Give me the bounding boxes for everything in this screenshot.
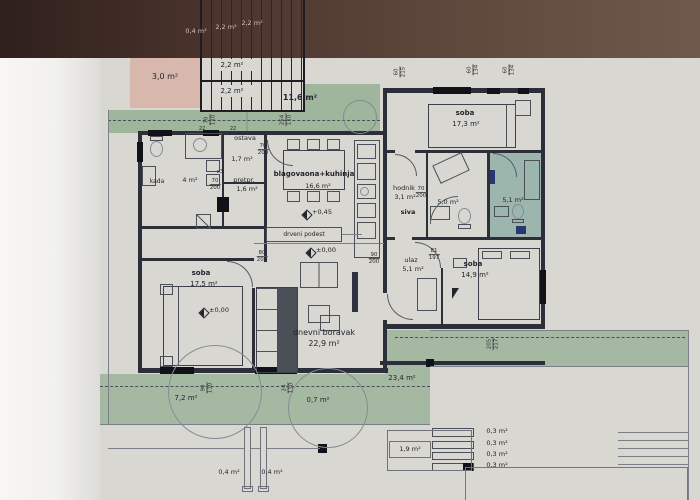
elev-soba: ±0,00 xyxy=(209,306,229,315)
sofa xyxy=(256,287,298,373)
chair xyxy=(307,139,320,150)
post xyxy=(260,427,267,489)
toilet-tank xyxy=(458,224,471,229)
dim-wall-a: 22 xyxy=(199,125,205,134)
stair-upper-area: 2,2 m² xyxy=(221,61,244,70)
kupaonica-right-area: 5,0 m² xyxy=(437,198,458,207)
dim-window-1: 60215 xyxy=(394,67,407,78)
far-stair-line xyxy=(618,432,688,433)
nightstand xyxy=(160,284,173,295)
blagovaona-name: blagovaona+kuhinja xyxy=(274,170,355,179)
chair xyxy=(287,191,300,202)
floor-plan: 3,0 m² 2,2 m² 2,2 m² 11,6 m² soba 17,3 m… xyxy=(0,0,700,500)
wall-hodnik-top-b xyxy=(415,150,543,153)
window-mark xyxy=(518,88,529,94)
dnevni-name: dnevni boravak xyxy=(293,328,355,337)
hodnik-sub: siva xyxy=(401,208,416,217)
soba-ne-area: 17,3 m² xyxy=(452,120,479,129)
wall-spine-c xyxy=(383,320,387,373)
fixture-navy xyxy=(516,226,526,234)
shelf xyxy=(524,160,540,200)
section-line-terrace-se xyxy=(395,337,685,338)
bed-sw-pillow-line xyxy=(178,286,179,366)
kupaonica-left-area: 4 m² xyxy=(182,176,197,185)
wall-ulaz-soba xyxy=(441,268,443,328)
mark-x3: x3 xyxy=(217,168,224,177)
stair-side-pink xyxy=(130,58,200,108)
wall-row-bottom-a xyxy=(385,237,395,240)
photo-dark-band xyxy=(0,0,700,58)
blagovaona-area: 16,6 m² xyxy=(305,182,330,191)
bathtub xyxy=(432,152,469,184)
door-arc-soba-sw xyxy=(227,261,253,287)
ulaz-area: 5,1 m² xyxy=(402,265,423,274)
post xyxy=(244,427,251,489)
dim-door-soba-sw: 80200 xyxy=(257,250,268,263)
stove-burner xyxy=(360,187,369,196)
pretpr-name: pretpr. xyxy=(233,176,254,185)
elev-dnevni: ±0,00 xyxy=(316,246,336,255)
soba-ne-name: soba xyxy=(456,109,475,118)
chair xyxy=(327,139,340,150)
tv-cabinet xyxy=(352,272,358,312)
ostava-area: 1,7 m² xyxy=(231,155,252,164)
terrace-se-top-line xyxy=(430,330,688,331)
far-stair-line xyxy=(618,464,688,465)
section-line-terrace-sw xyxy=(100,386,430,387)
dim-door-pretpr: 70200 xyxy=(210,178,221,191)
dim-door-ostava: 70200 xyxy=(258,143,269,156)
band-label: 2,2 m² xyxy=(241,19,262,28)
toilet-bowl xyxy=(512,204,524,219)
chair xyxy=(307,191,320,202)
wall-spine-a xyxy=(383,88,387,132)
terrace-edge-wall xyxy=(380,361,545,365)
kitchen-unit xyxy=(357,163,376,180)
loggia-green-strip xyxy=(108,110,248,133)
soba-se-name: soba xyxy=(464,260,483,269)
shaft-hatch xyxy=(196,214,211,229)
window-mark xyxy=(540,270,546,304)
loggia-area: 11,6 m² xyxy=(283,93,317,102)
toilet-bowl xyxy=(150,141,163,157)
door-swing-arrow xyxy=(452,288,459,299)
swing-circle xyxy=(288,368,368,448)
dim-terrace-1: 90110 xyxy=(201,383,214,394)
ostava-name: ostava xyxy=(234,134,256,143)
wall-soba-sw-dnevni xyxy=(252,288,255,372)
terasa-s-area: 0,7 m² xyxy=(307,396,330,405)
stuba-4-area: 0,3 m² xyxy=(486,461,507,470)
dnevni-area: 22,9 m² xyxy=(308,339,339,348)
stuba-1-area: 0,3 m² xyxy=(486,427,507,436)
band-label: 0,4 m² xyxy=(185,27,206,36)
wall-bath-teal xyxy=(487,150,490,237)
survey-circle xyxy=(343,100,377,134)
dim-door-ulaz: 81197 xyxy=(429,248,440,261)
dim-loggia-2: 254110 xyxy=(280,114,293,127)
kitchen-unit xyxy=(357,222,376,239)
door-arc-hodnik xyxy=(395,154,417,176)
stair-lower-area: 2,2 m² xyxy=(221,87,244,96)
column-mark xyxy=(217,197,229,212)
door-arc-dnevni-ulaz xyxy=(387,294,413,320)
dim-wall-b: 22 xyxy=(230,125,236,134)
soba-teal-area: 5,1 m² xyxy=(502,196,523,205)
pretpr-area: 1,6 m² xyxy=(236,185,257,194)
wall-hodnik-top-a xyxy=(385,150,395,153)
dim-loggia-1: 70110 xyxy=(204,115,217,126)
window-mark xyxy=(433,87,471,94)
dim-window-2: 60134 xyxy=(467,65,480,76)
chair xyxy=(327,191,340,202)
window-mark xyxy=(487,88,500,94)
dim-window-3: 60134 xyxy=(503,65,516,76)
ulaz-name: ulaz xyxy=(404,256,417,265)
wall-soba-sw-top xyxy=(138,258,254,261)
side-table xyxy=(300,262,338,288)
door-arc-ostava xyxy=(267,140,293,166)
hodnik-area: 3,1 m² xyxy=(394,193,415,202)
closet-ulaz xyxy=(417,278,437,311)
window-mark xyxy=(137,142,143,162)
elev-kuhinja: +0,45 xyxy=(312,208,332,217)
swing-circle xyxy=(168,345,262,439)
stuba-2-area: 0,3 m² xyxy=(486,439,507,448)
pillow xyxy=(482,251,502,259)
toilet-bowl xyxy=(458,208,471,224)
post-footing xyxy=(258,486,269,492)
kada-label: kada xyxy=(150,177,165,186)
soba-sw-name: soba xyxy=(192,269,211,278)
washbasin-bowl xyxy=(193,138,207,152)
elevation-marker xyxy=(305,247,316,258)
wall-row-bottom-b xyxy=(412,237,543,240)
section-line-top xyxy=(108,120,380,121)
far-stair-line xyxy=(618,448,688,449)
terrace-sw-bottom-line xyxy=(100,424,430,425)
paper-left-margin xyxy=(0,0,100,500)
dim-door-hodnik: 70200 xyxy=(416,186,427,199)
wall-ostava-left xyxy=(222,133,224,228)
far-stair-line xyxy=(618,440,688,441)
dim-terrace-2: 24110 xyxy=(282,383,295,394)
stair-landing-line xyxy=(200,80,305,82)
podest-label: drveni podest xyxy=(283,230,324,239)
kitchen-unit xyxy=(357,203,376,218)
nightstand xyxy=(160,356,173,367)
hodnik-name: hodnik xyxy=(393,184,415,193)
terasa-sw-area: 7,2 m² xyxy=(175,394,198,403)
terrace-se-bottom-line xyxy=(430,366,688,367)
podest-dim-line xyxy=(342,234,362,235)
pillow xyxy=(510,251,530,259)
soba-sw-area: 17,5 m² xyxy=(190,280,217,289)
far-stair-line xyxy=(618,456,688,457)
dim-door-dnevni: 90200 xyxy=(369,252,380,265)
pool-outline xyxy=(465,467,688,500)
kitchen-sink xyxy=(357,144,376,159)
sink xyxy=(494,206,509,217)
wardrobe xyxy=(515,100,531,116)
dim-terrace-3: 205217 xyxy=(487,338,500,351)
bed-ne-pillow-line xyxy=(506,104,507,148)
elevation-marker xyxy=(301,209,312,220)
ground-line xyxy=(108,448,320,449)
stuba-3-area: 0,3 m² xyxy=(486,450,507,459)
band-label: 2,2 m² xyxy=(215,23,236,32)
stair-side-area: 3,0 m² xyxy=(152,72,178,81)
terasa-se-area: 23,4 m² xyxy=(388,374,415,383)
wall-south-right-wing xyxy=(385,324,545,329)
wall-spine-b xyxy=(383,132,387,293)
stup-b-area: 0,4 m² xyxy=(261,468,282,477)
plan-left-boundary xyxy=(108,110,109,425)
wall-top-left-wing xyxy=(140,131,385,135)
plan-right-boundary xyxy=(688,330,689,500)
post-footing xyxy=(242,486,253,492)
spremiste-area: 1,9 m² xyxy=(399,445,420,454)
stup-a-area: 0,4 m² xyxy=(218,468,239,477)
toilet-tank xyxy=(512,219,524,223)
soba-se-area: 14,9 m² xyxy=(461,271,488,280)
